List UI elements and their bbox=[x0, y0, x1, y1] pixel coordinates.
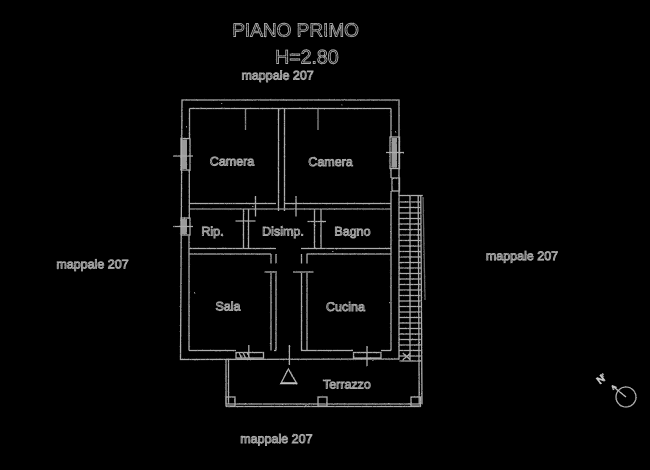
svg-text:Bagno: Bagno bbox=[334, 225, 370, 239]
svg-text:Disimp.: Disimp. bbox=[262, 224, 304, 238]
svg-text:mappale 207: mappale 207 bbox=[56, 257, 128, 271]
svg-text:Rip.: Rip. bbox=[201, 224, 223, 238]
svg-text:H=2.80: H=2.80 bbox=[275, 46, 339, 68]
svg-text:Sala: Sala bbox=[215, 299, 240, 313]
svg-text:mappale 207: mappale 207 bbox=[240, 432, 312, 446]
svg-text:Camera: Camera bbox=[308, 155, 353, 169]
svg-text:mappale 207: mappale 207 bbox=[241, 68, 313, 82]
svg-text:Cucina: Cucina bbox=[326, 300, 365, 314]
svg-text:Camera: Camera bbox=[210, 154, 255, 168]
svg-text:mappale 207: mappale 207 bbox=[486, 249, 558, 263]
svg-text:Terrazzo: Terrazzo bbox=[323, 377, 371, 391]
svg-text:PIANO PRIMO: PIANO PRIMO bbox=[232, 20, 359, 41]
